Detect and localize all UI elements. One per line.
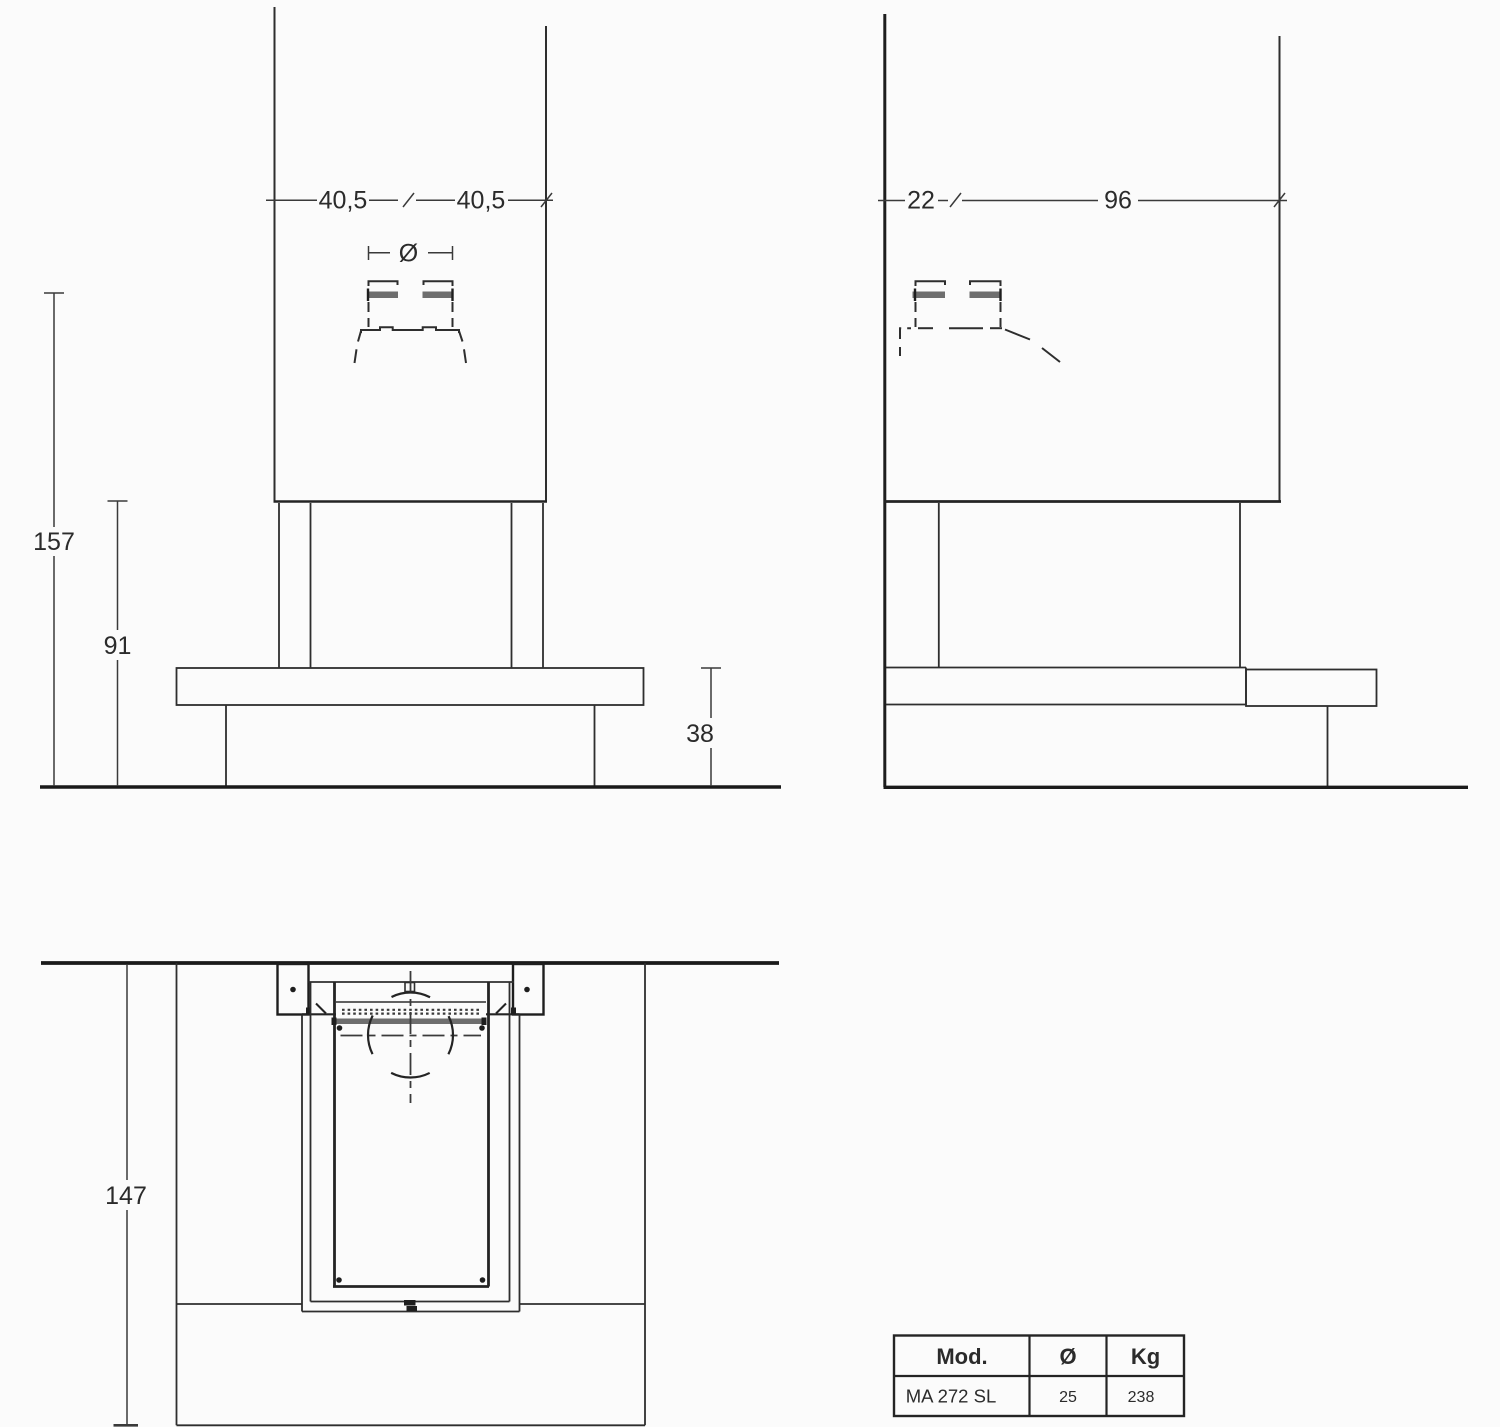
svg-text:40,5: 40,5	[457, 187, 506, 215]
svg-text:147: 147	[105, 1182, 147, 1210]
svg-text:238: 238	[1128, 1389, 1155, 1406]
svg-text:96: 96	[1104, 187, 1132, 215]
svg-text:Ø: Ø	[399, 240, 418, 268]
svg-text:157: 157	[33, 528, 75, 556]
svg-text:40,5: 40,5	[319, 187, 368, 215]
svg-text:Mod.: Mod.	[936, 1344, 987, 1369]
svg-text:38: 38	[686, 720, 714, 748]
svg-text:MA 272 SL: MA 272 SL	[906, 1386, 997, 1407]
svg-text:Kg: Kg	[1131, 1344, 1160, 1369]
svg-text:22: 22	[907, 187, 935, 215]
svg-text:25: 25	[1059, 1389, 1077, 1406]
svg-text:91: 91	[104, 632, 132, 660]
svg-text:Ø: Ø	[1059, 1344, 1076, 1369]
